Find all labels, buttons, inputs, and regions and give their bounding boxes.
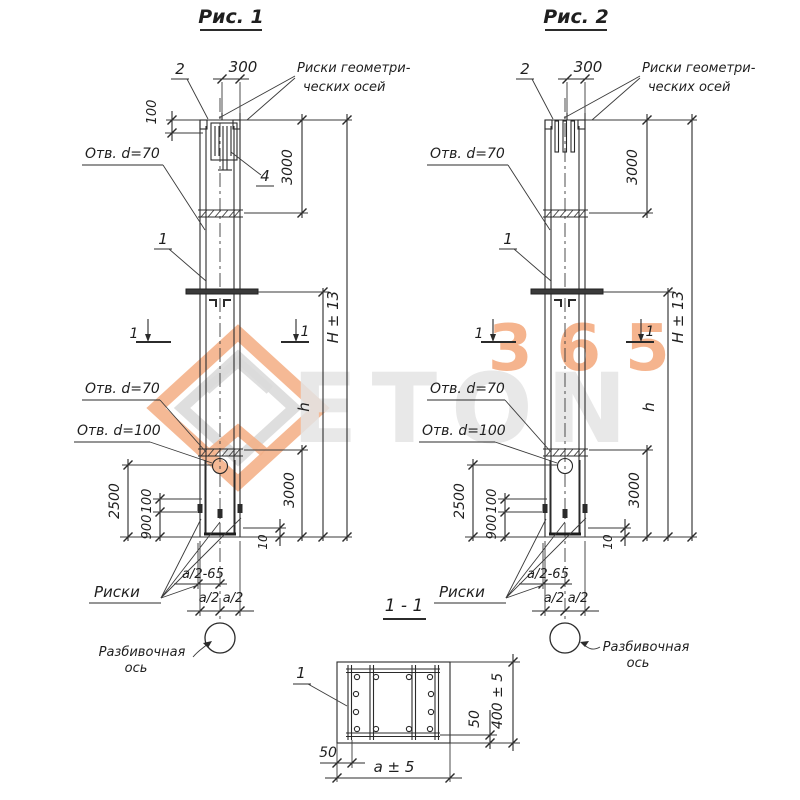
section-rebar-cage <box>346 665 440 740</box>
fig1-axis-label-2: ось <box>125 661 148 676</box>
fig2-dim-10: 10 <box>601 534 615 550</box>
fig1-dim-10: 10 <box>256 534 270 550</box>
technical-drawing-svg: ETON 365 Рис. 1 2 300 Риски геометри- че… <box>0 0 800 800</box>
fig2-dim-2500: 2500 <box>452 483 468 519</box>
section-title: 1 - 1 <box>385 596 424 616</box>
fig2-cut-right-label: 1 <box>646 324 655 340</box>
fig1-hole-d100: Отв. d=100 <box>77 423 161 439</box>
fig2-axis-label-1: Разбивочная <box>603 640 690 655</box>
fig1-dim-H: H ± 13 <box>324 291 342 343</box>
fig2-hole-d70-top: Отв. d=70 <box>430 146 505 162</box>
fig1-dim-h: h <box>295 402 313 412</box>
fig1-dim-300: 300 <box>229 58 258 76</box>
fig1-mark-1: 1 <box>158 230 168 248</box>
fig2-hole-d70: Отв. d=70 <box>430 381 505 397</box>
fig1-title: Рис. 1 <box>198 6 264 28</box>
section-dim-50-left: 50 <box>319 745 337 761</box>
fig2-cut-left-label: 1 <box>475 326 484 342</box>
fig1-dim-2500: 2500 <box>107 483 123 519</box>
fig1-risks-label: Риски <box>94 583 140 601</box>
fig2-dim-100: 100 <box>485 489 500 514</box>
fig2-dim-300: 300 <box>574 58 603 76</box>
fig2-dim-3000-top: 3000 <box>625 149 641 185</box>
fig1-hole-d70: Отв. d=70 <box>85 381 160 397</box>
fig2-dim-a2-right: a/2 <box>568 591 589 606</box>
fig1-dim-a2-right: a/2 <box>223 591 244 606</box>
fig1-hole-d70-top: Отв. d=70 <box>85 146 160 162</box>
fig2-dim-h: h <box>640 402 658 412</box>
fig1-risks-axes-2: ческих осей <box>303 80 386 95</box>
fig1-cut-left-label: 1 <box>130 326 139 342</box>
fig2-mark-2: 2 <box>520 60 530 78</box>
fig1-dim-100-top: 100 <box>145 100 160 125</box>
fig1-risks-axes-1: Риски геометри- <box>297 61 411 76</box>
fig1-dim-900: 900 <box>140 515 155 540</box>
fig1-cut-right-label: 1 <box>301 324 310 340</box>
watermark-number: 365 <box>488 312 694 386</box>
fig2-title: Рис. 2 <box>543 6 609 28</box>
drawing-sheet: ETON 365 Рис. 1 2 300 Риски геометри- че… <box>0 0 800 800</box>
fig2-dim-a2-left: a/2 <box>544 591 565 606</box>
fig2-mark-1: 1 <box>503 230 513 248</box>
fig2-risks-axes-2: ческих осей <box>648 80 731 95</box>
section-dim-50-right: 50 <box>467 710 483 728</box>
fig2-risks-label: Риски <box>439 583 485 601</box>
fig2-risks-axes-1: Риски геометри- <box>642 61 756 76</box>
fig1-mark-4: 4 <box>260 167 270 185</box>
watermark: ETON 365 <box>156 312 694 483</box>
fig2-dim-3000-bottom: 3000 <box>627 472 643 508</box>
fig2-dim-a2-65: a/2-65 <box>527 567 569 582</box>
section-dim-a: a ± 5 <box>374 758 415 776</box>
fig2-hole-d100: Отв. d=100 <box>422 423 506 439</box>
fig1-dim-3000-top: 3000 <box>280 149 296 185</box>
fig1-dim-a2-left: a/2 <box>199 591 220 606</box>
fig1-dim-a2-65: a/2-65 <box>182 567 224 582</box>
fig2-dim-H: H ± 13 <box>669 291 687 343</box>
section-mark-1: 1 <box>296 664 306 682</box>
fig1-mark-2: 2 <box>175 60 185 78</box>
fig1-axis-label-1: Разбивочная <box>99 645 186 660</box>
fig1-dim-3000-bottom: 3000 <box>282 472 298 508</box>
section-1-1: 1 - 1 1 <box>293 596 520 783</box>
section-dim-400: 400 ± 5 <box>490 673 506 729</box>
fig2-dim-900: 900 <box>485 515 500 540</box>
fig2-axis-label-2: ось <box>627 656 650 671</box>
fig1-dim-100: 100 <box>140 489 155 514</box>
